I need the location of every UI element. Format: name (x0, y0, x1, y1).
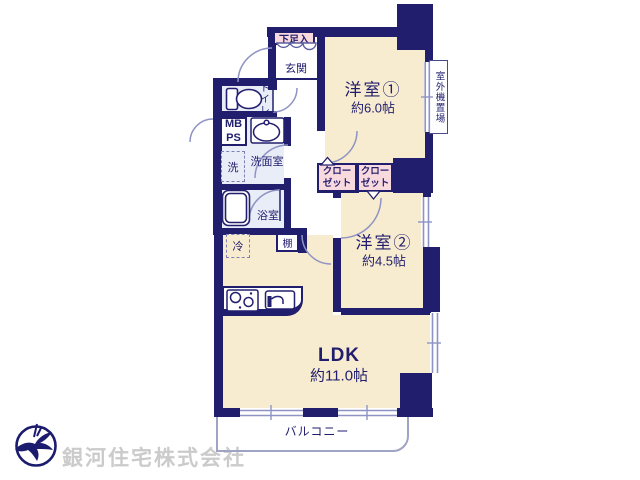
hallway-floor (291, 117, 317, 192)
shelf-label: 棚 (283, 235, 293, 250)
bathroom-label: 浴室 (257, 207, 279, 223)
company-watermark: 銀河住宅株式会社 (62, 442, 246, 472)
closet-right-label1: クロー (361, 166, 390, 177)
shelf-box: 棚 (276, 233, 299, 252)
fridge-box: 冷 (226, 234, 250, 258)
wall-bottom-1 (214, 408, 240, 417)
closet-left-label1: クロー (323, 166, 352, 177)
wall-ldk-door-jamb (298, 228, 307, 253)
shoe-storage-label: 下足入 (279, 31, 309, 46)
room1-area: 約6.0帖 (351, 98, 395, 117)
wall-washroom-right-upper (284, 117, 291, 146)
pipe-shaft-label: PS (225, 132, 242, 145)
meter-box: MB PS (220, 117, 247, 146)
entrance-step-line (276, 78, 317, 80)
wall-ldk-corner-block (400, 373, 432, 417)
shoe-storage-box: 下足入 (273, 31, 315, 45)
wall-room1-right-upper (425, 37, 433, 62)
washer-box: 洗 (221, 151, 245, 182)
wall-room2-right-upper (423, 193, 431, 197)
closet-left: クロー ゼット (317, 163, 357, 192)
washroom-label: 洗面室 (251, 153, 284, 169)
entrance-hall-floor (273, 37, 317, 117)
wall-room1-right-lower (425, 132, 433, 158)
closet-left-label2: ゼット (323, 178, 352, 189)
wall-room1-left (317, 37, 325, 131)
wall-room2-right-jut (423, 247, 440, 312)
fridge-label: 冷 (233, 238, 244, 254)
wall-room2-left-lower (333, 238, 341, 312)
floor-plan: 下足入 MB PS クロー ゼット クロー ゼット 棚 冷 洗 室外機置場 (0, 0, 640, 480)
wall-right-mid-block (393, 158, 433, 193)
balcony-label: バルコニー (285, 423, 350, 440)
wall-room2-ldk (341, 308, 431, 315)
meter-box-label: MB (225, 118, 242, 131)
wall-ldk-left (214, 228, 223, 417)
washer-label: 洗 (228, 159, 239, 175)
wall-bottom-2 (303, 408, 338, 417)
outdoor-unit-label: 室外機置場 (432, 71, 446, 124)
entrance-label: 玄関 (285, 60, 307, 76)
ldk-area: 約11.0帖 (310, 365, 368, 386)
closet-right-label2: ゼット (361, 178, 390, 189)
company-logo (15, 424, 56, 466)
toilet-label: トイレ (256, 83, 271, 116)
room2-area: 約4.5帖 (362, 251, 406, 270)
kitchen-counter (222, 286, 303, 316)
meterbox-door-arc (190, 119, 213, 142)
closet-right: クロー ゼット (357, 163, 393, 192)
outdoor-unit-box: 室外機置場 (429, 60, 448, 134)
entrance-door-arc (238, 48, 272, 82)
wall-wash-bath (222, 184, 289, 190)
